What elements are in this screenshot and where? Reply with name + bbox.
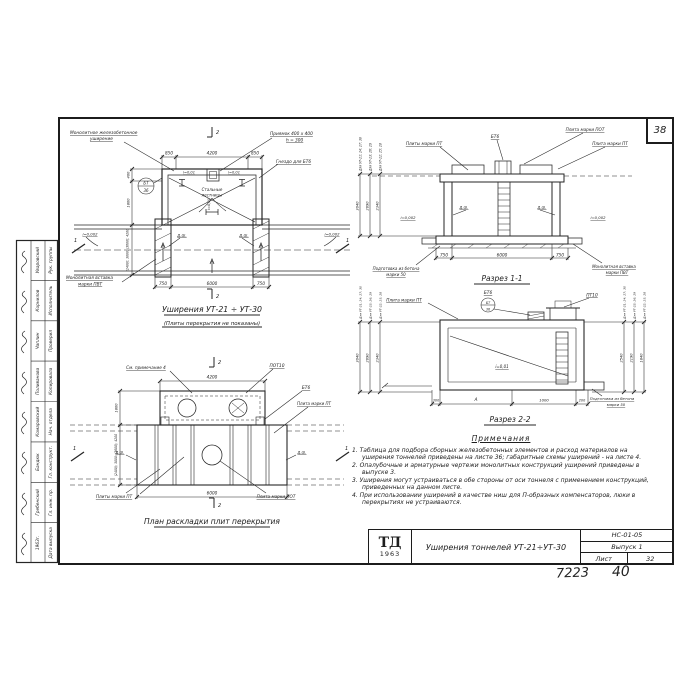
label-pt10: ПТ10 [586, 293, 598, 299]
label-plates-pt: Плиты марки ПТ [96, 494, 133, 499]
stamp-role-5: Копировала [48, 367, 54, 395]
height-right-val-3: 1840 [640, 353, 644, 363]
signature-squiggle [22, 533, 27, 555]
signature-squiggle [22, 251, 27, 273]
section-mark-1-left: 1 [73, 446, 76, 452]
handwritten-number-left: 7223 [556, 565, 590, 581]
label-plates-pt: Плиты марки ПТ [406, 141, 443, 146]
dim-200: 200 [579, 399, 585, 403]
sheet-row: Лист 32 [581, 553, 673, 564]
dim-4200: 4200 [207, 151, 218, 156]
label-slope-0002-left: i=0,002 [82, 232, 98, 237]
callout-top: БТ [143, 181, 149, 186]
dim-1000: 1000 [539, 398, 549, 403]
height-left-val-3: 2340 [376, 353, 380, 363]
note-item-4: 4. При использовании уширений в качестве… [352, 492, 650, 506]
dim-850-right: 850 [251, 151, 259, 156]
height-for-2: Для УТ-23; 26; 29 [369, 143, 373, 172]
stamp-role-7: Исполнитель [48, 285, 54, 315]
label-pit-h: h = 300 [286, 138, 304, 144]
height-left-for-2: Для УТ-23; 26; 29 [369, 292, 373, 320]
dim-1800: 1800 [127, 198, 131, 208]
height-val-1: 3040 [356, 201, 360, 211]
label-plate-pt: Плита марки ПТ [297, 401, 332, 406]
label-plate-pot: Плита марки ПОТ [257, 494, 296, 499]
label-monolith-widening: Монолитное железобетонное [70, 130, 138, 136]
signature-squiggle [22, 291, 27, 313]
stamp-texts: Дата выпуска 1963г. Гл. инж. пр. Гребенс… [35, 246, 54, 559]
dim-4200: 4200 [207, 375, 218, 380]
section-2-2-drawing: Плита марки ПТ БТ6 БТ 36 ПТ10 i=0,01 Под… [352, 286, 652, 436]
slab-leader-lines [71, 357, 349, 527]
dim-width-variants: (2400); 3000; (3600); 4200 [114, 434, 118, 476]
signature-squiggle [22, 412, 27, 434]
plan-subtitle: (Плиты перекрытия не показаны) [164, 321, 260, 327]
dim-a: А [473, 397, 477, 403]
logo-initials: ТД [379, 537, 402, 550]
signature-stamp-strip: Дата выпуска 1963г. Гл. инж. пр. Гребенс… [16, 240, 58, 563]
s22-dimension-lines [358, 320, 646, 406]
slab-dimension-lines [118, 379, 289, 499]
height-right-for-1: Для УТ-21; 24; 27; 30 [623, 286, 627, 320]
callout-top: БТ [486, 301, 491, 305]
stamp-name-4: Комаровский [35, 407, 41, 437]
label-base-2: марки 50 [607, 402, 626, 407]
stamp-name-5: Поливанова [35, 367, 41, 395]
plan-linework [74, 169, 350, 277]
s11-dimension-lines [358, 172, 570, 260]
stamp-name-2: Гребенский [35, 489, 41, 516]
label-plate-pt: Плита марки ПТ [592, 141, 628, 146]
stamp-name-7: Корнилов [35, 289, 41, 311]
stamp-role-1: Дата выпуска [48, 527, 54, 560]
handwritten-number-right: 40 [612, 564, 630, 581]
plan-texts: Монолитное железобетонное уширение Приям… [66, 130, 349, 327]
label-slope: i=0,01 [495, 364, 508, 369]
label-joint-left: д.ш. [459, 205, 469, 210]
doc-number: НС-01-05 [581, 530, 673, 542]
signature-squiggle [22, 493, 27, 515]
plan-drawing: Монолитное железобетонное уширение Приям… [62, 125, 350, 340]
height-left-for-3: Для УТ-22; 25; 28 [379, 292, 383, 320]
title-block: ТД 1963 Уширения тоннелей УТ-21÷УТ-30 НС… [368, 529, 674, 565]
note-item-2: 2. Опалубочные и арматурные чертежи моно… [352, 462, 650, 476]
label-socket: Гнездо для БТ6 [276, 159, 311, 165]
section-mark-2-bottom: 2 [216, 294, 219, 300]
height-right-val-1: 2540 [620, 353, 624, 363]
s11-texts: БТ6 Плита марки ПОТ Плиты марки ПТ Плита… [356, 127, 637, 283]
label-note4: См. примечание 4 [126, 365, 166, 370]
label-bt6: БТ6 [484, 290, 493, 296]
section-mark-1-right: 1 [345, 446, 348, 452]
dim-750-right: 750 [556, 253, 564, 258]
s22-texts: Плита марки ПТ БТ6 БТ 36 ПТ10 i=0,01 Под… [356, 286, 647, 424]
height-for-1: Для УТ-21; 24; 27; 30 [359, 137, 363, 172]
stamp-signatures [22, 251, 27, 555]
label-joint-right: д.ш. [537, 205, 547, 210]
label-slope-left: i=0,002 [400, 215, 416, 220]
section-1-1-drawing: БТ6 Плита марки ПОТ Плиты марки ПТ Плита… [352, 118, 652, 286]
dim-750-left: 750 [440, 253, 448, 258]
label-monolith-widening-2: уширение [89, 137, 113, 142]
dim-300: 300 [433, 399, 439, 403]
label-joint-left: д.ш. [176, 233, 186, 238]
label-stairs: Стальные [202, 187, 223, 192]
height-right-for-2: Для УТ-23; 26; 29 [633, 292, 637, 320]
height-for-3: Для УТ-22; 25; 28 [379, 143, 383, 172]
slab-layout-drawing: См. примечание 4 ПОТ10 БТ6 Плита марки П… [62, 355, 352, 535]
stamp-role-6: Проверил [48, 330, 54, 352]
stamp-role-8: Рук. группы [48, 246, 54, 274]
sheet-number: 38 [654, 125, 667, 136]
drawing-title: Уширения тоннелей УТ-21÷УТ-30 [412, 530, 581, 564]
label-slope-center: i=0,01 [207, 198, 211, 210]
label-insert: Монолитная вставка [66, 275, 113, 281]
height-right-for-3: Для УТ-22; 25; 28 [643, 292, 647, 320]
label-base-2: марки 50 [386, 272, 406, 277]
dim-6000: 6000 [497, 253, 508, 258]
section-2-2-title: Разрез 2-2 [489, 415, 530, 424]
label-slope-top-right: i=0,01 [228, 171, 240, 175]
dim-6000: 6000 [207, 281, 218, 286]
label-slope-0002-right: i=0,002 [324, 232, 340, 237]
label-insert-2: марки ПВТ [78, 282, 103, 288]
label-insert: Монолитная вставка [592, 264, 636, 269]
note-item-3: 3. Уширения могут устраиваться в обе сто… [352, 477, 650, 491]
label-plate-pot: Плита марки ПОТ [566, 127, 605, 132]
label-stairs-2: лестницы [201, 193, 223, 198]
label-pit: Приямок 400 x 400 [270, 131, 313, 137]
logo-year: 1963 [380, 550, 401, 558]
height-val-3: 2340 [376, 201, 380, 211]
label-plate-pt: Плита марки ПТ [386, 298, 422, 303]
sheet-value: 32 [628, 553, 674, 564]
section-mark-2-top: 2 [218, 360, 221, 366]
label-joint-right: д.ш. [297, 450, 307, 455]
stamp-name-3: Бандюк [35, 453, 41, 471]
dim-750-left: 750 [159, 281, 167, 286]
signature-squiggle [22, 331, 27, 353]
callout-bottom: 36 [143, 188, 149, 193]
stamp-name-8: Уваровский [35, 247, 41, 273]
label-insert-2: марки ПВТ [606, 270, 629, 275]
label-bt6: БТ6 [491, 134, 500, 140]
section-mark-1-right: 1 [346, 238, 349, 244]
signature-squiggle [22, 372, 27, 394]
notes-section: Примечания 1. Таблица для подбора сборны… [352, 434, 650, 507]
dim-850-left: 850 [165, 151, 173, 156]
note-item-1: 1. Таблица для подбора сборных железобет… [352, 447, 650, 461]
label-joint-right: д.ш. [238, 233, 248, 238]
label-base: Подготовка из бетона [373, 266, 420, 271]
dim-width-variants: (2400); 3000; (3600); 4200 [126, 229, 130, 271]
slab-texts: См. примечание 4 ПОТ10 БТ6 Плита марки П… [73, 360, 348, 526]
section-1-1-title: Разрез 1-1 [481, 274, 522, 283]
height-left-val-1: 3040 [356, 353, 360, 363]
plan-title: Уширения УТ-21 ÷ УТ-30 [162, 305, 262, 314]
slab-plan-title: План раскладки плит перекрытия [144, 517, 280, 526]
stamp-name-6: Чаплин [35, 332, 41, 349]
section-mark-2-bottom: 2 [218, 503, 221, 509]
label-base: Подготовка из бетона [590, 396, 635, 401]
stamp-name-1: 1963г. [35, 536, 41, 551]
section-mark-2-top: 2 [216, 130, 219, 136]
signature-squiggle [22, 452, 27, 474]
sheet-label: Лист [581, 553, 628, 564]
org-logo: ТД 1963 [369, 530, 412, 564]
dim-1800: 1800 [115, 403, 119, 413]
label-pot10: ПОТ10 [269, 363, 284, 369]
height-right-val-2: 2190 [630, 353, 634, 363]
height-left-for-1: Для УТ-21; 24; 27; 30 [359, 286, 363, 320]
issue-number: Выпуск 1 [581, 542, 673, 554]
label-slope-top-left: i=0,01 [183, 171, 195, 175]
s22-linework [382, 301, 604, 390]
stamp-role-3: Гл. конструкт. [48, 446, 54, 479]
label-slope-right: i=0,002 [590, 215, 606, 220]
callout-bottom: 36 [486, 308, 490, 312]
stamp-role-2: Гл. инж. пр. [48, 489, 54, 516]
stamp-role-4: Нач. отдела [48, 408, 54, 436]
dim-750-right: 750 [257, 281, 265, 286]
height-val-2: 2690 [366, 201, 370, 211]
label-bt6: БТ6 [302, 385, 311, 391]
section-mark-1-left: 1 [74, 238, 77, 244]
dim-400: 400 [127, 171, 131, 179]
height-left-val-2: 2690 [366, 353, 370, 363]
notes-heading: Примечания [352, 434, 650, 443]
dim-6000: 6000 [207, 491, 218, 496]
